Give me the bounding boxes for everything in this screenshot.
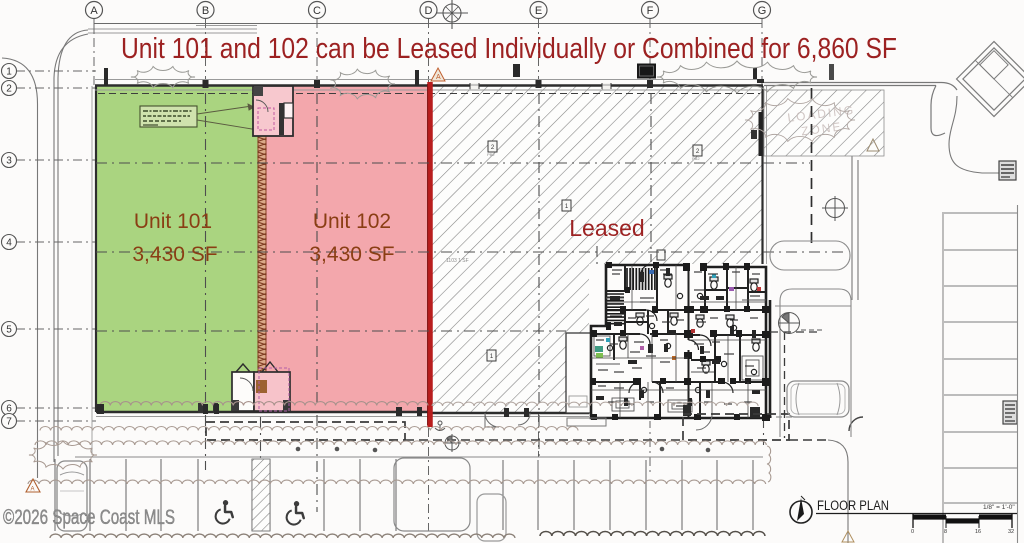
svg-text:PB2: PB2 [487, 152, 495, 157]
svg-text:Unit 101: Unit 101 [134, 210, 212, 233]
svg-text:4: 4 [6, 238, 12, 249]
svg-text:B: B [202, 5, 209, 17]
svg-text:A: A [31, 487, 35, 493]
svg-text:D: D [425, 5, 433, 17]
svg-text:A: A [90, 5, 98, 17]
svg-text:FLOOR PLAN: FLOOR PLAN [817, 498, 889, 513]
svg-text:3,430 SF: 3,430 SF [132, 243, 217, 266]
svg-text:F: F [647, 5, 654, 17]
svg-text:1/8" = 1'-0": 1/8" = 1'-0" [983, 504, 1015, 511]
svg-text:E: E [535, 5, 542, 17]
svg-text:PB2: PB2 [692, 156, 700, 161]
svg-text:2: 2 [6, 84, 12, 95]
svg-text:6: 6 [6, 404, 12, 415]
svg-text:C: C [313, 5, 321, 17]
svg-text:1: 1 [6, 67, 12, 78]
svg-text:8: 8 [944, 529, 947, 535]
svg-text:Unit 101 and 102 can be Leased: Unit 101 and 102 can be Leased Individua… [121, 33, 897, 65]
svg-text:7: 7 [6, 417, 12, 428]
svg-text:G: G [758, 5, 767, 17]
svg-text:1103 1 SF: 1103 1 SF [446, 258, 469, 264]
svg-text:0: 0 [911, 529, 914, 535]
svg-text:©2026 Space Coast MLS: ©2026 Space Coast MLS [3, 506, 175, 529]
svg-text:3: 3 [6, 156, 12, 167]
svg-text:5: 5 [6, 325, 12, 336]
svg-text:32: 32 [1008, 529, 1014, 535]
svg-text:A: A [436, 74, 441, 81]
svg-text:Leased: Leased [569, 215, 644, 241]
svg-text:16: 16 [975, 529, 981, 535]
svg-text:Unit 102: Unit 102 [313, 210, 391, 233]
svg-text:3,430 SF: 3,430 SF [309, 243, 394, 266]
